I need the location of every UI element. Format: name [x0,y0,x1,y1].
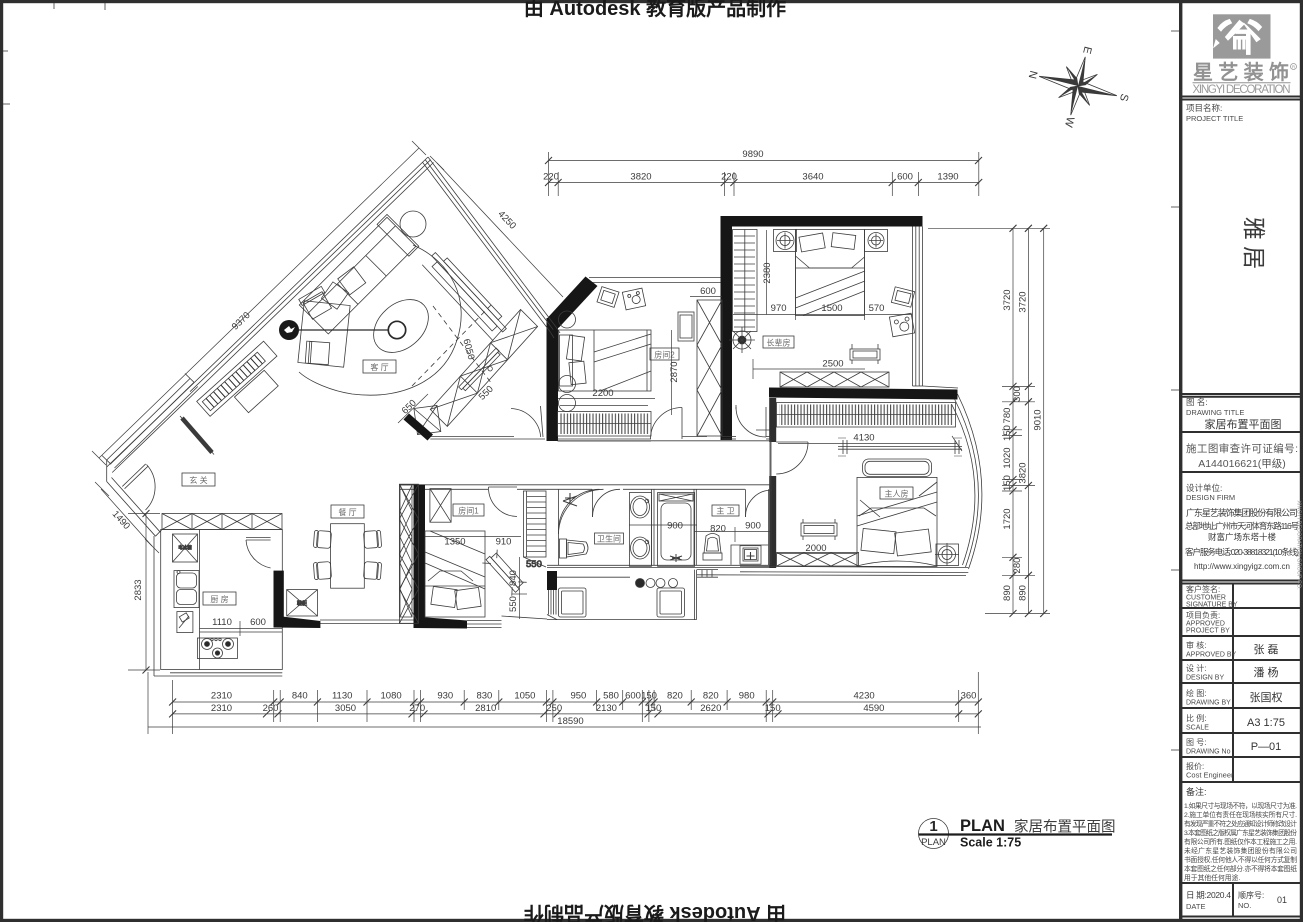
svg-text:2810: 2810 [475,703,496,714]
svg-text:DESIGN FIRM: DESIGN FIRM [1186,493,1235,502]
svg-text:2833: 2833 [133,579,144,600]
svg-text:书面授权,任何他人不得以任何方式复制: 书面授权,任何他人不得以任何方式复制 [1184,855,1297,864]
svg-text:APPROVED: APPROVED [1186,621,1225,628]
svg-text:张国权: 张国权 [1250,691,1283,704]
svg-text:长辈房: 长辈房 [767,338,791,348]
svg-text:9890: 9890 [742,149,763,160]
svg-text:家居布置平面图: 家居布置平面图 [1014,819,1116,836]
svg-text:830: 830 [476,691,492,702]
svg-text:150: 150 [765,703,781,714]
svg-text:客户签名:: 客户签名: [1186,584,1220,594]
svg-text:220: 220 [543,172,559,183]
svg-text:2500: 2500 [822,359,843,370]
svg-text:600: 600 [625,691,641,702]
svg-text:360: 360 [961,691,977,702]
svg-text:审 核:: 审 核: [1186,640,1206,650]
svg-text:厨 房: 厨 房 [210,594,228,604]
svg-text:房间2: 房间2 [654,350,675,360]
svg-text:SCALE: SCALE [1186,725,1209,732]
svg-text:2620: 2620 [700,703,721,714]
svg-text:PLAN: PLAN [921,837,946,848]
svg-text:150: 150 [1002,425,1013,441]
svg-text:XINGYI DECORATION: XINGYI DECORATION [1193,84,1291,96]
svg-text:卫生间: 卫生间 [597,534,621,544]
svg-text:玄 关: 玄 关 [189,475,207,485]
svg-text:鞋柜: 鞋柜 [297,600,307,607]
svg-text:18590: 18590 [557,716,583,727]
svg-text:840: 840 [508,570,519,586]
svg-text:由 Autodesk 教育版产品制作: 由 Autodesk 教育版产品制作 [524,902,786,922]
svg-text:820: 820 [667,691,683,702]
svg-text:970: 970 [771,303,787,314]
svg-text:1: 1 [929,818,937,835]
svg-text:备注:: 备注: [1186,786,1207,797]
svg-text:950: 950 [570,691,586,702]
svg-text:绘 图:: 绘 图: [1186,688,1206,698]
svg-text:1350: 1350 [444,537,465,548]
svg-text:4230: 4230 [854,691,875,702]
svg-text:PROJECT BY: PROJECT BY [1186,628,1230,635]
svg-text:890: 890 [1017,585,1028,601]
svg-text:890: 890 [1002,585,1013,601]
svg-text:DRAWING BY: DRAWING BY [1186,700,1231,707]
svg-text:潘 杨: 潘 杨 [1253,665,1278,679]
svg-text:客户服务电话:020-38818321(10条线): 客户服务电话:020-38818321(10条线) [1185,547,1299,557]
svg-text:Scale 1:75: Scale 1:75 [960,836,1021,850]
svg-text:项目名称:: 项目名称: [1186,103,1222,113]
svg-text:3640: 3640 [802,172,823,183]
svg-text:250: 250 [546,703,562,714]
svg-text:有发现严重不符之处应通知设计师修改设计: 有发现严重不符之处应通知设计师修改设计 [1184,819,1297,828]
svg-text:报价:: 报价: [1186,761,1204,771]
svg-text:2310: 2310 [211,703,232,714]
svg-text:820: 820 [710,524,726,535]
svg-text:1.如果尺寸与现场不符，以现场尺寸为准.: 1.如果尺寸与现场不符，以现场尺寸为准. [1184,801,1297,810]
svg-text:570: 570 [869,303,885,314]
svg-text:DRAWING No: DRAWING No [1186,749,1231,756]
svg-text:NO.: NO. [1238,901,1251,910]
svg-text:820: 820 [703,691,719,702]
svg-text:Cost Engineer: Cost Engineer [1186,771,1234,780]
svg-text:2380: 2380 [762,262,773,283]
svg-text:施工图审查许可证编号:: 施工图审查许可证编号: [1186,442,1298,455]
svg-text:设计单位:: 设计单位: [1186,483,1222,493]
svg-text:1020: 1020 [1002,447,1013,468]
svg-text:3720: 3720 [1017,291,1028,312]
svg-text:840: 840 [292,691,308,702]
svg-text:图 名:: 图 名: [1186,397,1208,407]
svg-text:雅 居: 雅 居 [1241,217,1267,269]
svg-text:PLAN: PLAN [960,817,1005,835]
svg-text:930: 930 [437,691,453,702]
svg-text:3720: 3720 [1002,289,1013,310]
svg-text:300: 300 [1012,386,1023,402]
svg-text:3820: 3820 [630,172,651,183]
svg-text:用于其他任何用途.: 用于其他任何用途. [1184,873,1240,882]
svg-text:DATE: DATE [1186,902,1205,911]
svg-text:900: 900 [745,521,761,532]
svg-text:XINGYI DECORATION GROUP CO.: XINGYI DECORATION GROUP CO. [1296,500,1302,590]
svg-text:1110: 1110 [212,617,232,628]
svg-text:总部地址:广州市天河体育东路116号: 总部地址:广州市天河体育东路116号 [1185,521,1299,531]
svg-text:比 例:: 比 例: [1186,713,1206,723]
svg-text:CUSTOMER: CUSTOMER [1186,595,1226,602]
svg-text:由 Autodesk 教育版产品制作: 由 Autodesk 教育版产品制作 [524,0,786,20]
svg-text:150: 150 [1002,475,1013,491]
svg-text:2130: 2130 [596,703,617,714]
svg-text:DRAWING TITLE: DRAWING TITLE [1186,408,1244,417]
svg-text:日 期:2020.4: 日 期:2020.4 [1186,890,1231,900]
svg-text:150: 150 [645,703,661,714]
svg-text:家居布置平面图: 家居布置平面图 [1205,417,1282,431]
svg-text:150: 150 [641,691,657,702]
svg-text:2.施工单位有责任在现场核实所有尺寸.: 2.施工单位有责任在现场核实所有尺寸. [1184,810,1297,819]
svg-text:1130: 1130 [332,691,352,702]
svg-text:设 计:: 设 计: [1186,663,1206,673]
svg-text:910: 910 [496,537,512,548]
svg-text:主人房: 主人房 [885,489,909,499]
svg-text:项目负责:: 项目负责: [1186,610,1220,620]
svg-text:P—01: P—01 [1251,741,1282,753]
svg-text:顺序号:: 顺序号: [1238,890,1264,900]
svg-text:9010: 9010 [1033,409,1044,430]
svg-text:1080: 1080 [381,691,402,702]
svg-text:A144016621(甲级): A144016621(甲级) [1198,458,1286,470]
svg-text:DESIGN BY: DESIGN BY [1186,675,1224,682]
svg-text:房间1: 房间1 [458,506,479,516]
svg-text:2310: 2310 [211,691,232,702]
svg-text:600: 600 [897,172,913,183]
svg-text:220: 220 [721,172,737,183]
svg-text:780: 780 [1002,408,1013,424]
svg-text:3050: 3050 [335,703,356,714]
svg-text:有限公司所有.图纸仅作本工程施工之用.: 有限公司所有.图纸仅作本工程施工之用. [1184,837,1297,846]
svg-text:260: 260 [263,703,279,714]
svg-text:270: 270 [409,703,425,714]
svg-text:餐 厅: 餐 厅 [338,508,356,517]
svg-text:01: 01 [1277,895,1287,905]
svg-text:1050: 1050 [514,691,535,702]
svg-text:2870: 2870 [669,361,680,382]
svg-text:1500: 1500 [821,303,842,314]
svg-text:电冰箱: 电冰箱 [178,544,192,551]
svg-text:图 号:: 图 号: [1186,738,1206,747]
svg-text:张 磊: 张 磊 [1253,643,1278,656]
svg-text:1390: 1390 [937,172,958,183]
svg-text:A3 1:75: A3 1:75 [1247,717,1285,729]
svg-text:广东星艺装饰集团股份有限公司: 广东星艺装饰集团股份有限公司 [1186,507,1298,518]
svg-text:1720: 1720 [1002,508,1013,529]
svg-text:财富广场东塔十楼: 财富广场东塔十楼 [1208,532,1277,542]
svg-text:3820: 3820 [1017,462,1028,483]
svg-text:980: 980 [739,691,755,702]
svg-text:http://www.xingyigz.com.cn: http://www.xingyigz.com.cn [1194,562,1290,571]
svg-text:客 厅: 客 厅 [370,362,388,372]
svg-text:600: 600 [250,617,266,628]
svg-text:本套图纸之任何部分.亦不得将本套图纸: 本套图纸之任何部分.亦不得将本套图纸 [1184,864,1297,873]
svg-text:APPROVED BY: APPROVED BY [1186,652,1237,659]
svg-text:4590: 4590 [863,703,884,714]
svg-text:550: 550 [526,559,542,570]
svg-text:SIGNATURE BY: SIGNATURE BY [1186,602,1238,609]
svg-text:主 卫: 主 卫 [716,506,734,516]
svg-text:4130: 4130 [853,433,874,444]
svg-text:2200: 2200 [592,388,613,399]
svg-text:580: 580 [603,691,619,702]
svg-text:3.本套图纸之版权属广东星艺装饰集团股份: 3.本套图纸之版权属广东星艺装饰集团股份 [1184,828,1297,837]
svg-text:2000: 2000 [805,543,826,554]
svg-text:280: 280 [1012,558,1023,574]
svg-text:600: 600 [700,286,716,297]
svg-text:PROJECT TITLE: PROJECT TITLE [1186,114,1243,123]
svg-text:550: 550 [508,596,519,612]
svg-text:未经广东星艺装饰集团股份有限公司: 未经广东星艺装饰集团股份有限公司 [1184,846,1297,855]
svg-text:900: 900 [667,521,683,532]
